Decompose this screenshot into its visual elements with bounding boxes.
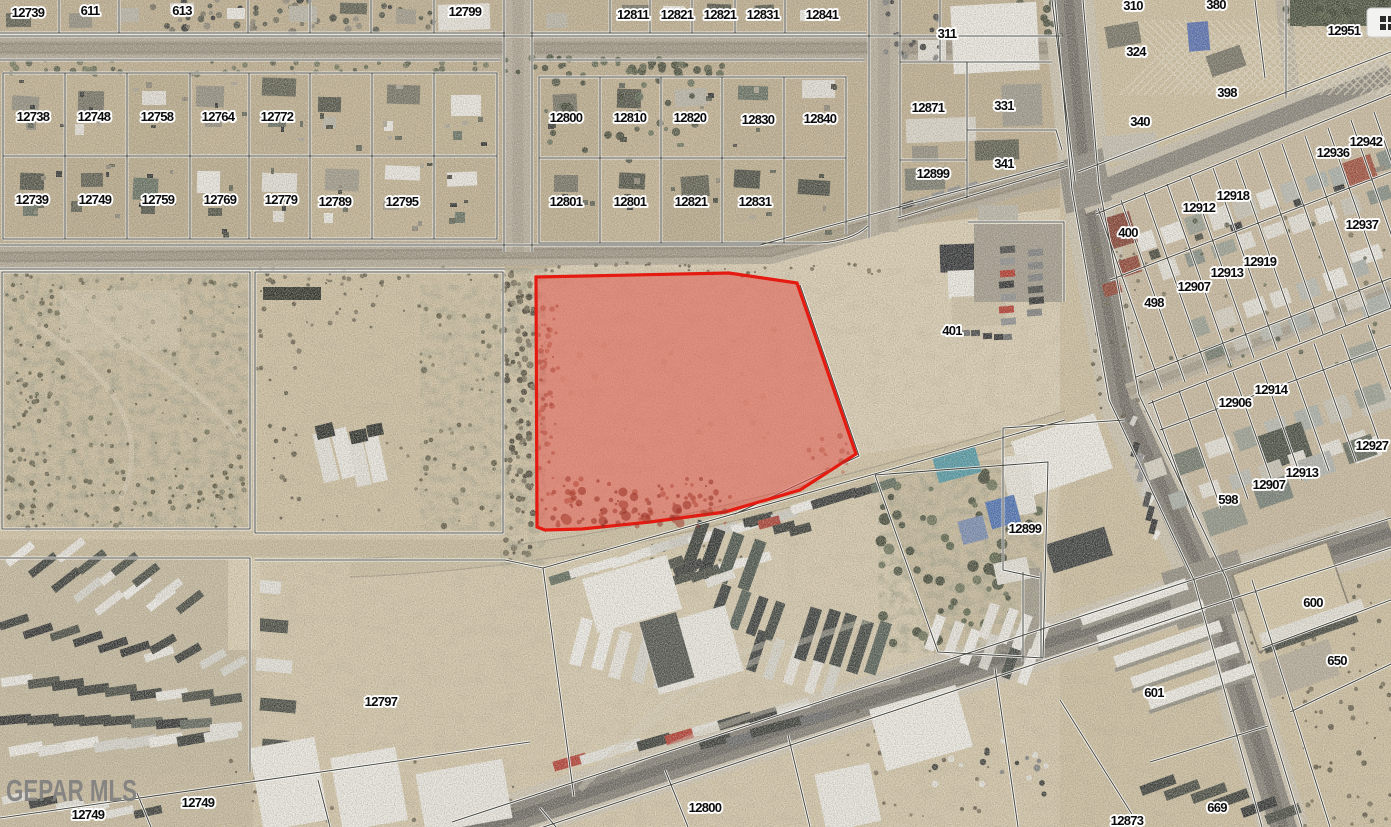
svg-text:12871: 12871 — [912, 100, 945, 115]
svg-text:12873: 12873 — [1111, 813, 1144, 827]
svg-text:12821: 12821 — [675, 194, 708, 209]
svg-text:12749: 12749 — [79, 192, 112, 207]
svg-text:12772: 12772 — [261, 109, 294, 124]
svg-text:12748: 12748 — [78, 109, 111, 124]
svg-text:12801: 12801 — [550, 194, 583, 209]
svg-text:340: 340 — [1130, 114, 1150, 129]
svg-text:613: 613 — [172, 3, 192, 18]
svg-text:401: 401 — [942, 323, 962, 338]
svg-text:12769: 12769 — [204, 192, 237, 207]
svg-text:324: 324 — [1126, 44, 1147, 59]
svg-text:12800: 12800 — [550, 110, 583, 125]
svg-text:611: 611 — [81, 3, 100, 18]
svg-text:12810: 12810 — [614, 110, 647, 125]
svg-text:12764: 12764 — [202, 109, 236, 124]
svg-text:669: 669 — [1207, 800, 1227, 815]
svg-text:12913: 12913 — [1286, 465, 1319, 480]
svg-text:12749: 12749 — [182, 795, 215, 810]
svg-text:12800: 12800 — [689, 800, 722, 815]
svg-text:600: 600 — [1303, 595, 1323, 610]
svg-text:12789: 12789 — [319, 194, 352, 209]
svg-text:12936: 12936 — [1317, 145, 1350, 160]
svg-text:12821: 12821 — [661, 7, 694, 22]
svg-text:12797: 12797 — [365, 694, 398, 709]
svg-text:398: 398 — [1217, 85, 1237, 100]
svg-text:650: 650 — [1327, 653, 1347, 668]
svg-text:12738: 12738 — [17, 109, 50, 124]
svg-text:12820: 12820 — [674, 110, 707, 125]
svg-text:12831: 12831 — [739, 194, 772, 209]
svg-text:310: 310 — [1123, 0, 1143, 13]
svg-text:12758: 12758 — [141, 109, 174, 124]
svg-text:GEPAR MLS: GEPAR MLS — [6, 773, 137, 808]
svg-text:598: 598 — [1218, 492, 1238, 507]
svg-text:380: 380 — [1206, 0, 1226, 12]
svg-text:12759: 12759 — [142, 192, 175, 207]
svg-text:12937: 12937 — [1346, 217, 1379, 232]
svg-text:341: 341 — [994, 156, 1014, 171]
svg-text:12739: 12739 — [12, 5, 45, 20]
svg-text:12912: 12912 — [1183, 200, 1216, 215]
svg-text:12749: 12749 — [72, 807, 105, 822]
svg-text:12840: 12840 — [804, 111, 837, 126]
svg-text:12821: 12821 — [704, 7, 737, 22]
svg-text:331: 331 — [994, 98, 1014, 113]
svg-text:12919: 12919 — [1244, 254, 1277, 269]
svg-text:12918: 12918 — [1217, 188, 1250, 203]
svg-text:12779: 12779 — [265, 192, 298, 207]
svg-text:12899: 12899 — [1009, 521, 1042, 536]
svg-text:12795: 12795 — [386, 194, 419, 209]
svg-text:12831: 12831 — [747, 7, 780, 22]
svg-text:400: 400 — [1118, 225, 1138, 240]
svg-text:12907: 12907 — [1178, 279, 1211, 294]
svg-text:12830: 12830 — [742, 112, 775, 127]
svg-text:12942: 12942 — [1350, 134, 1383, 149]
svg-text:12899: 12899 — [917, 166, 950, 181]
svg-text:12951: 12951 — [1328, 23, 1361, 38]
svg-text:12841: 12841 — [806, 7, 839, 22]
svg-text:601: 601 — [1144, 685, 1164, 700]
svg-text:12739: 12739 — [16, 192, 49, 207]
svg-text:498: 498 — [1144, 295, 1164, 310]
svg-text:12906: 12906 — [1219, 395, 1252, 410]
svg-text:12914: 12914 — [1255, 382, 1289, 397]
svg-text:12907: 12907 — [1253, 477, 1286, 492]
svg-text:311: 311 — [938, 26, 957, 41]
svg-text:12801: 12801 — [614, 194, 647, 209]
svg-text:12811: 12811 — [617, 7, 649, 22]
svg-text:12913: 12913 — [1211, 265, 1244, 280]
svg-text:12799: 12799 — [449, 4, 482, 19]
svg-text:12927: 12927 — [1356, 438, 1389, 453]
